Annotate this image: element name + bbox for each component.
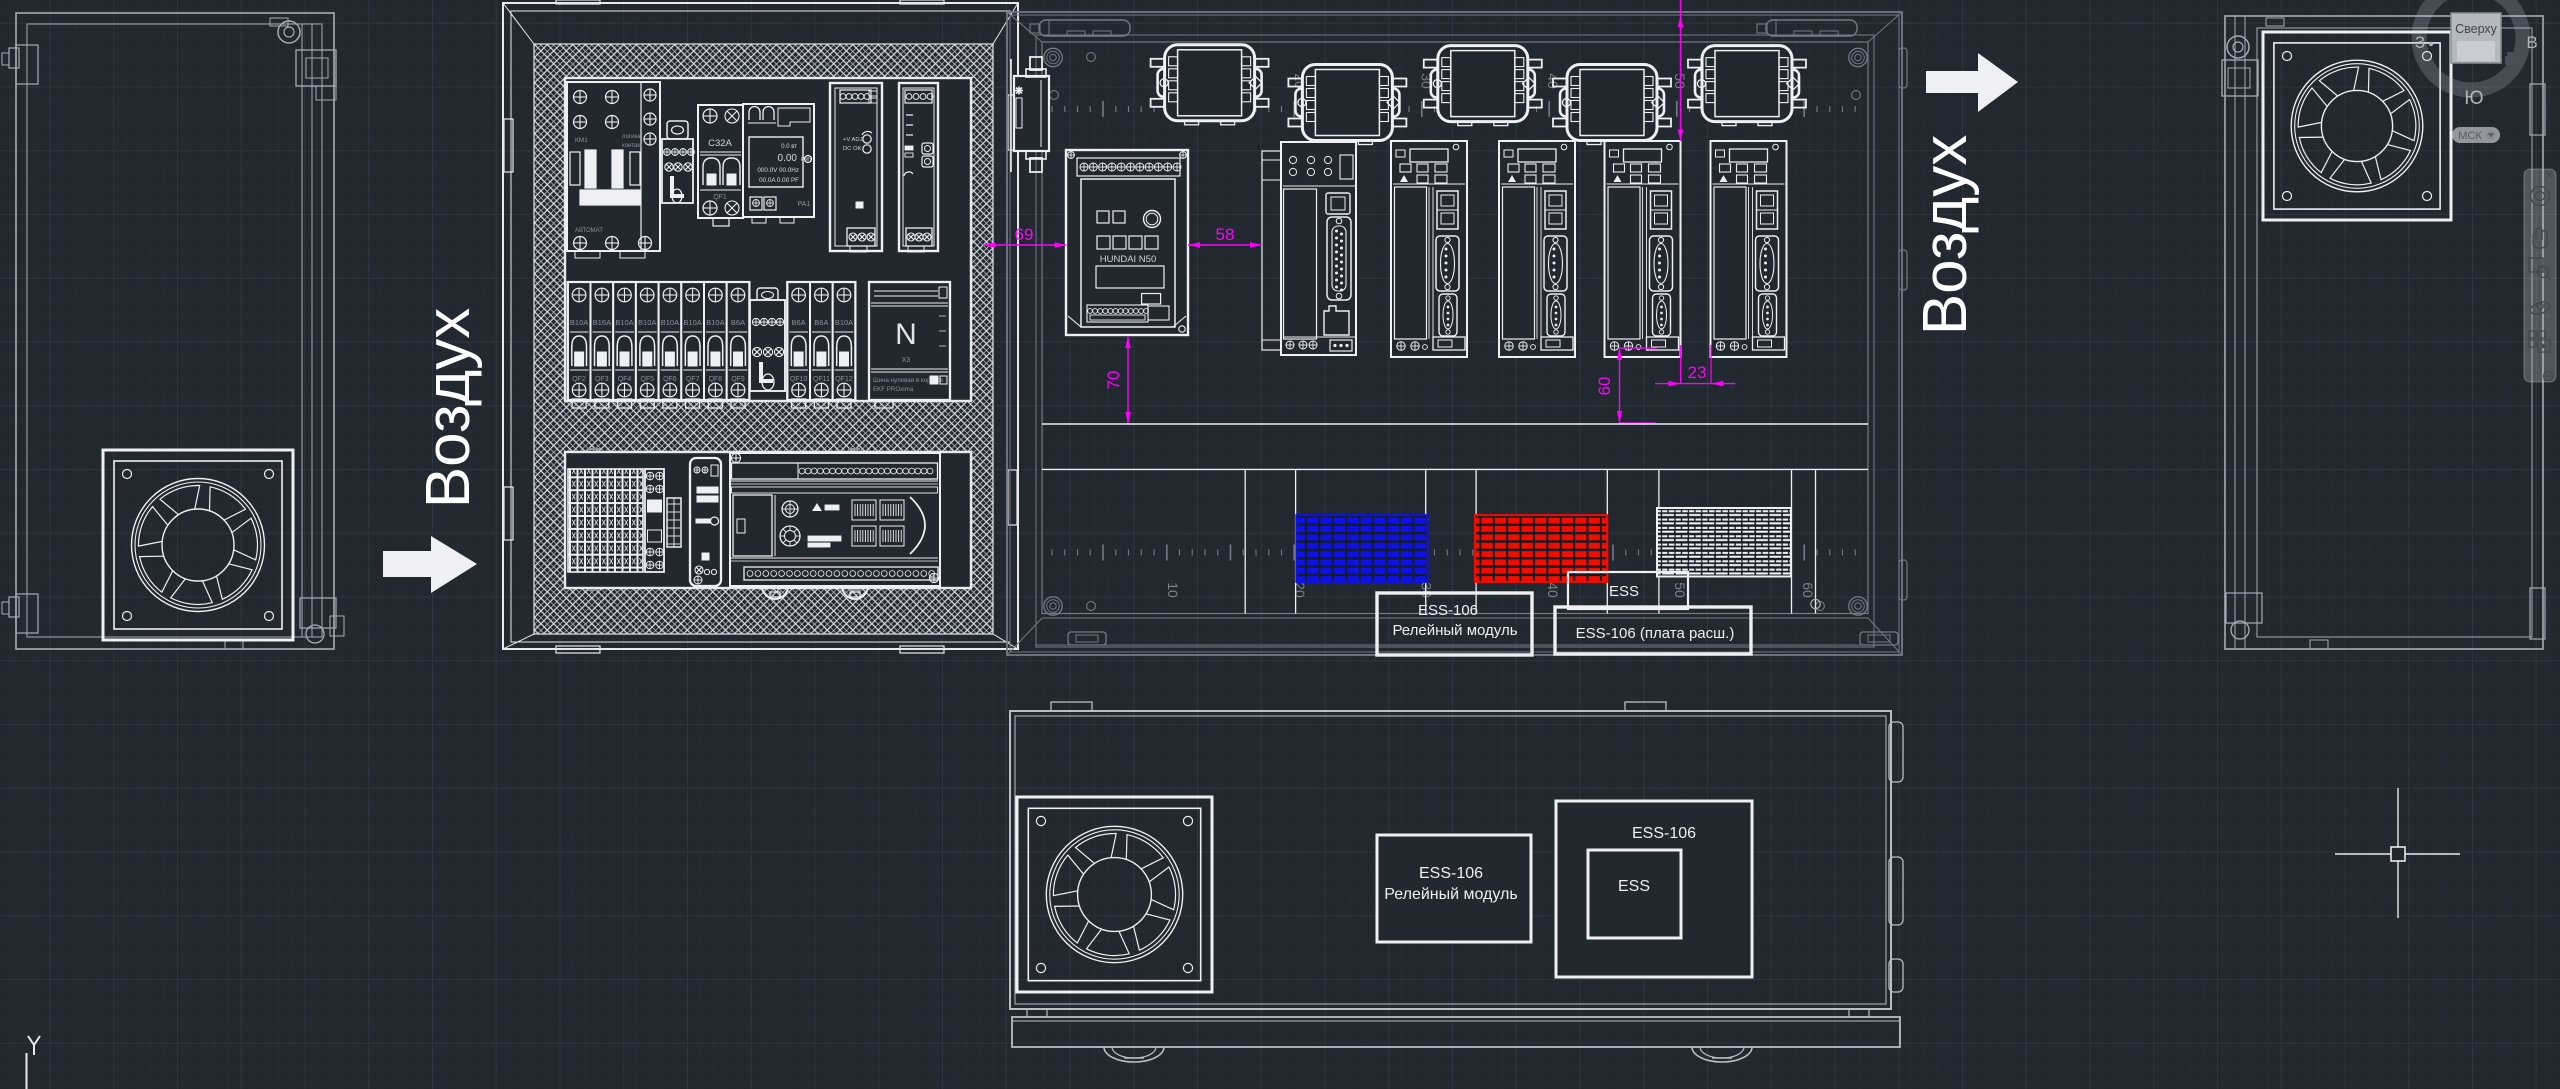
svg-text:B10A: B10A [661, 318, 679, 327]
svg-text:+V ADJ: +V ADJ [843, 137, 863, 143]
svg-text:QF4: QF4 [618, 376, 632, 383]
svg-text:PA1: PA1 [798, 201, 811, 208]
svg-text:C32A: C32A [708, 138, 732, 149]
svg-text:20: 20 [1292, 582, 1308, 598]
svg-text:QF1: QF1 [713, 194, 727, 201]
svg-text:DC OK: DC OK [843, 146, 861, 152]
svg-text:З: З [2415, 33, 2425, 52]
svg-text:B10A: B10A [570, 318, 588, 327]
svg-text:B10A: B10A [615, 318, 633, 327]
svg-text:QF3: QF3 [595, 376, 609, 383]
svg-text:Воздух: Воздух [414, 308, 483, 508]
svg-text:Воздух: Воздух [1911, 135, 1980, 335]
svg-text:50: 50 [1672, 582, 1688, 598]
svg-text:B6A: B6A [731, 318, 745, 327]
svg-text:60: 60 [1595, 377, 1614, 396]
svg-text:23: 23 [1688, 363, 1707, 382]
svg-text:00.0A 0.00 PF: 00.0A 0.00 PF [759, 177, 799, 184]
svg-text:Релейный модуль: Релейный модуль [1384, 886, 1517, 903]
svg-text:логика: логика [622, 134, 641, 140]
svg-text:QF10: QF10 [790, 376, 808, 383]
svg-text:69: 69 [1015, 225, 1034, 244]
svg-text:QF2: QF2 [572, 376, 586, 383]
svg-text:QF8: QF8 [709, 376, 723, 383]
svg-text:HUNDAI N50: HUNDAI N50 [1100, 254, 1157, 265]
svg-text:B10A: B10A [638, 318, 656, 327]
svg-text:000.0V 00.0Hz: 000.0V 00.0Hz [757, 167, 799, 174]
svg-text:QF7: QF7 [686, 376, 700, 383]
svg-text:40: 40 [1545, 582, 1561, 598]
svg-text:АВТОМАТ: АВТОМАТ [575, 228, 603, 234]
svg-text:B6A: B6A [814, 318, 828, 327]
svg-text:Релейный модуль: Релейный модуль [1392, 622, 1517, 639]
svg-text:МСК: МСК [2458, 130, 2482, 142]
svg-text:X3: X3 [902, 357, 911, 364]
svg-text:N: N [895, 318, 917, 351]
svg-text:Сверху: Сверху [2455, 22, 2498, 36]
svg-text:ESS-106: ESS-106 [1632, 825, 1696, 842]
svg-text:QF6: QF6 [663, 376, 677, 383]
svg-text:0.00: 0.00 [778, 153, 798, 164]
svg-text:B16A: B16A [593, 318, 611, 327]
svg-text:QF9: QF9 [731, 376, 745, 383]
svg-text:0.0 вт: 0.0 вт [781, 144, 797, 150]
svg-text:70: 70 [1104, 371, 1123, 390]
svg-text:QF12: QF12 [835, 376, 853, 383]
svg-text:10: 10 [1165, 582, 1181, 598]
svg-text:Ю: Ю [2464, 88, 2483, 109]
svg-text:ESS-106: ESS-106 [1419, 865, 1483, 882]
svg-text:QF11: QF11 [813, 376, 830, 383]
svg-text:EKF PROxima: EKF PROxima [873, 386, 914, 393]
svg-text:ESS-106: ESS-106 [1418, 602, 1478, 619]
svg-text:ESS: ESS [1618, 878, 1650, 895]
svg-text:КМ1: КМ1 [575, 137, 588, 144]
svg-text:60: 60 [1800, 582, 1816, 598]
svg-text:B10A: B10A [683, 318, 701, 327]
svg-text:контакт: контакт [622, 143, 643, 149]
svg-text:B10A: B10A [835, 318, 853, 327]
svg-text:В: В [2526, 33, 2537, 52]
svg-text:ESS: ESS [1609, 583, 1639, 600]
svg-text:B6A: B6A [792, 318, 806, 327]
svg-text:B10A: B10A [706, 318, 724, 327]
svg-text:58: 58 [1216, 225, 1235, 244]
svg-text:ESS-106 (плата расш.): ESS-106 (плата расш.) [1576, 625, 1735, 642]
svg-text:QF5: QF5 [640, 376, 654, 383]
svg-text:30: 30 [1419, 582, 1435, 598]
